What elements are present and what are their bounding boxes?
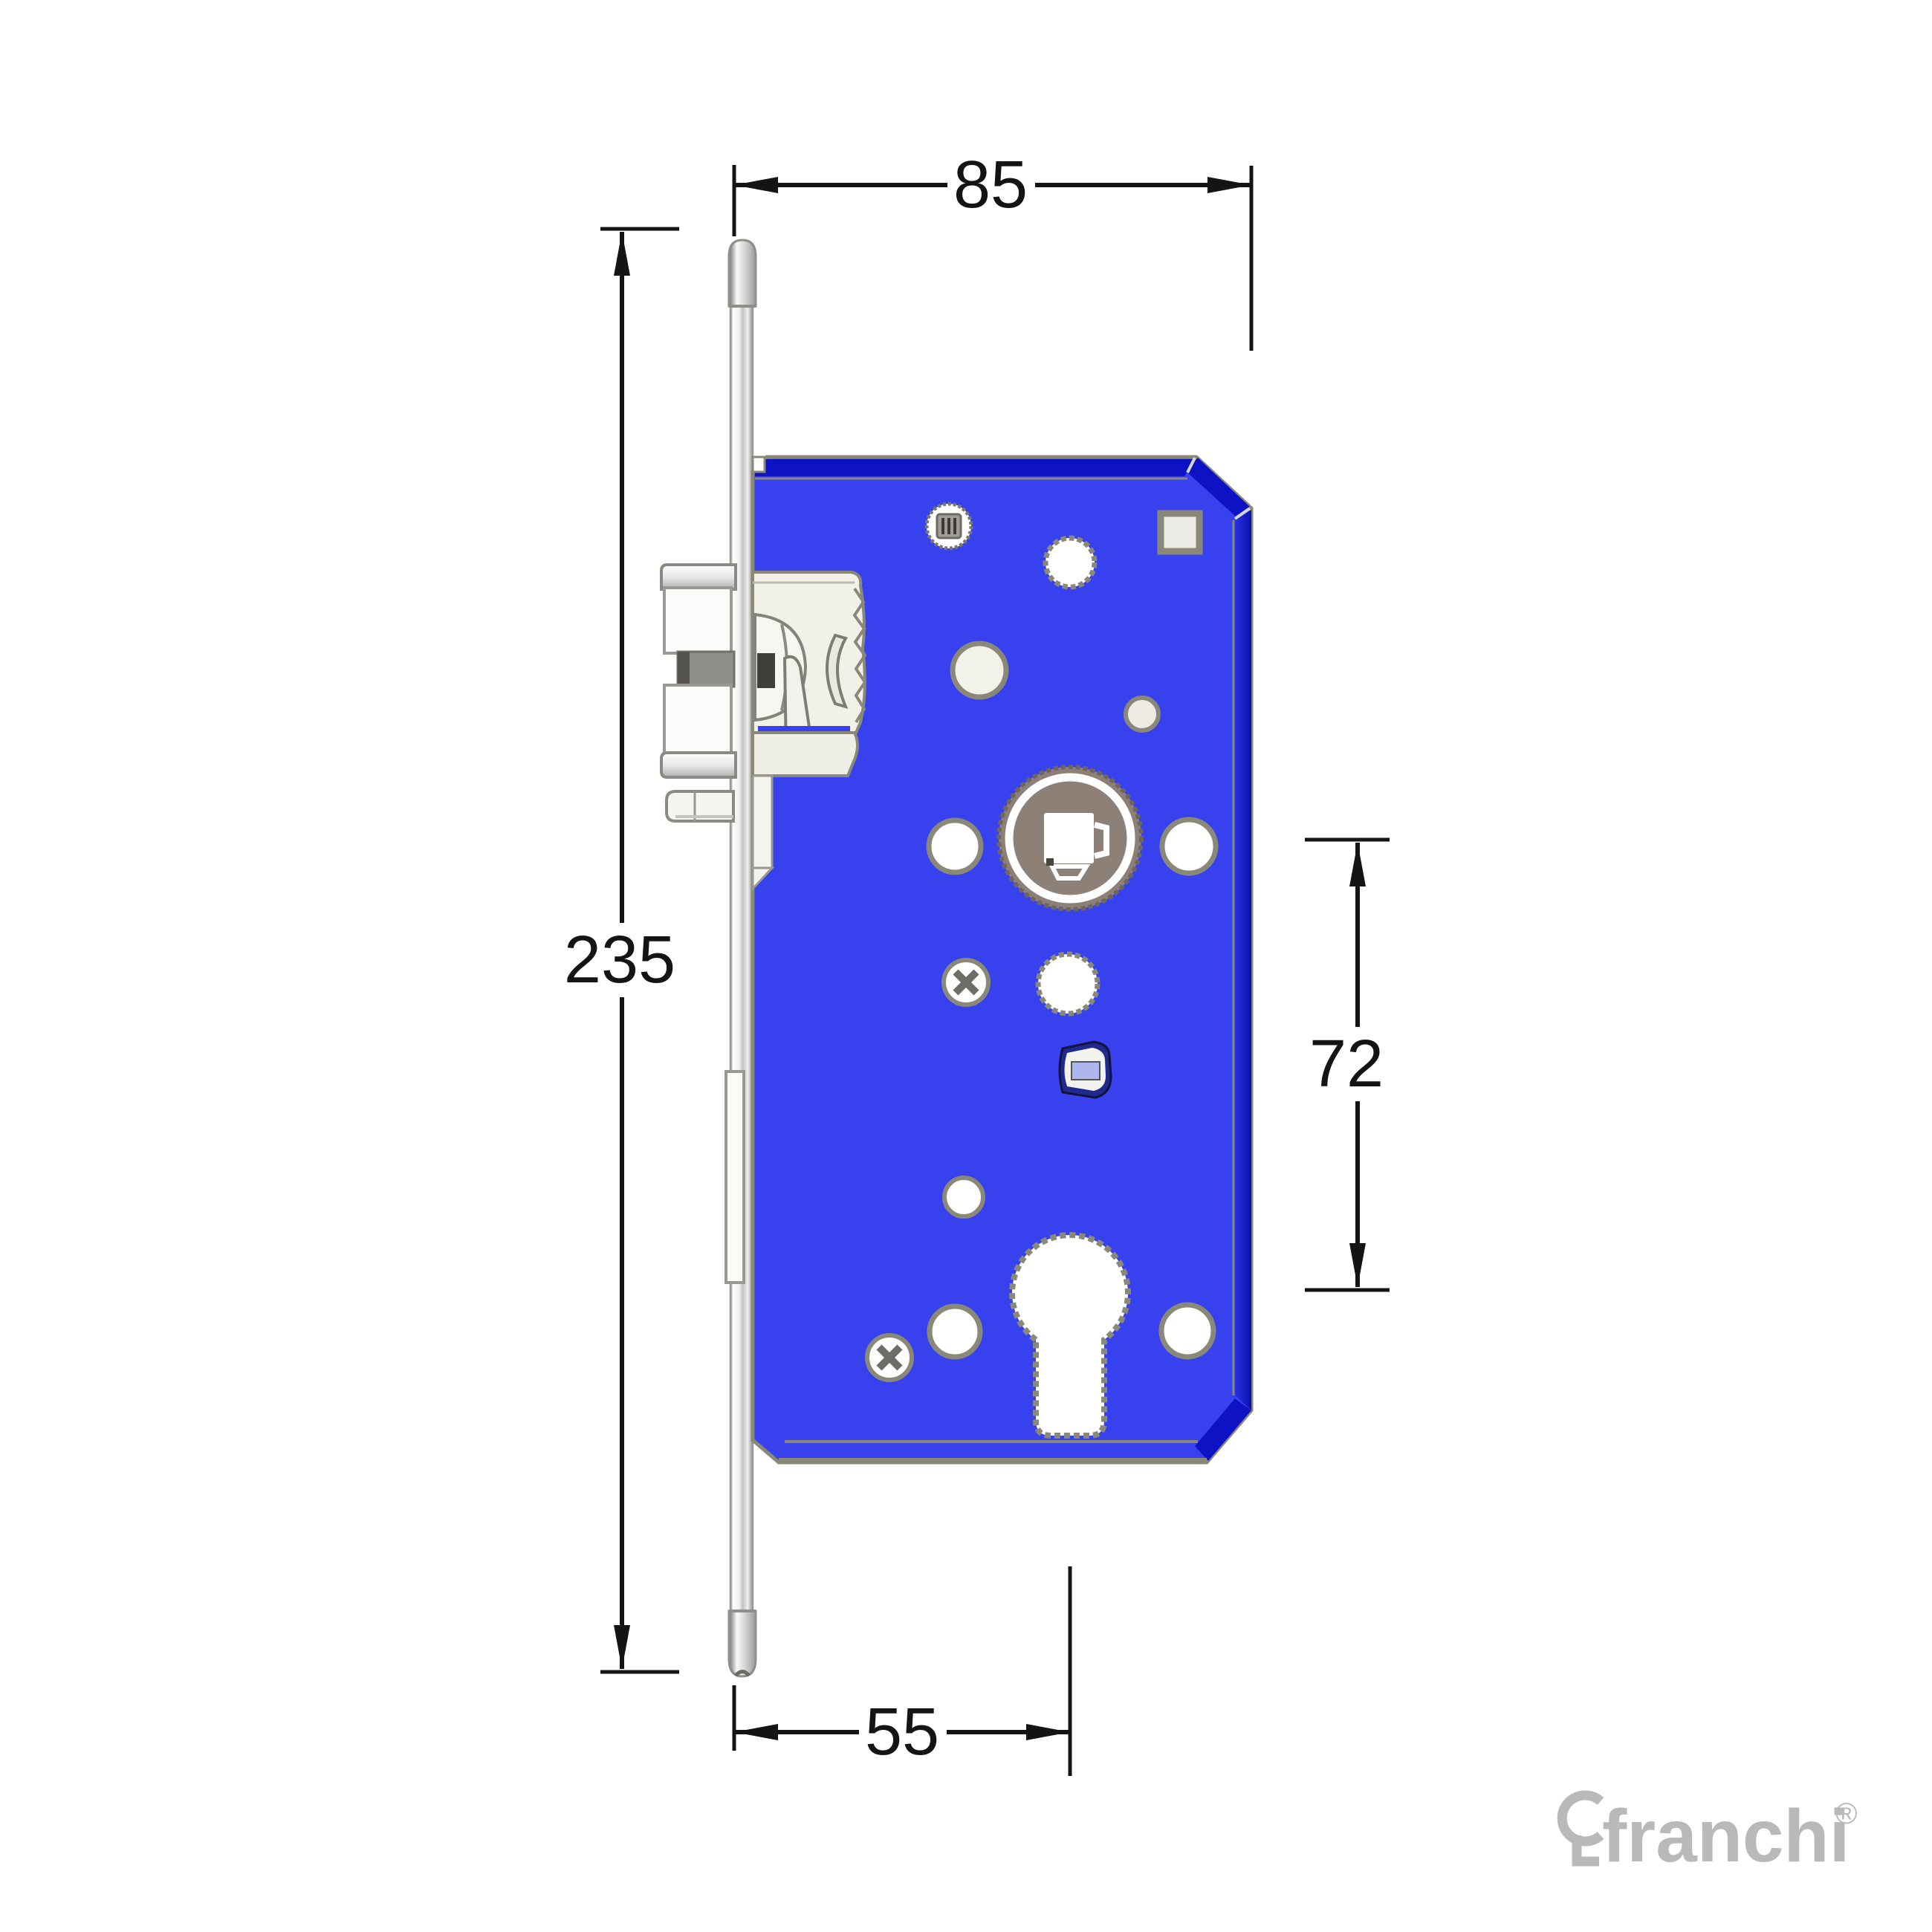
faceplate-strip xyxy=(730,306,753,1611)
dimension-backset: 55 xyxy=(734,1566,1070,1776)
registered-trademark: ® xyxy=(1835,1798,1857,1830)
auxiliary-pin xyxy=(667,791,733,821)
spindle-mark xyxy=(1046,858,1054,866)
faceplate-bottom-cap xyxy=(729,1611,756,1676)
mounting-hole xyxy=(1046,538,1095,587)
latch-bolt xyxy=(661,565,736,777)
mounting-hole xyxy=(1038,954,1098,1014)
dimension-label-235: 235 xyxy=(564,923,675,997)
lock-dimension-drawing: 85 235 72 55 franchi ® xyxy=(0,0,1932,1932)
mounting-hole xyxy=(930,1306,980,1357)
dimension-faceplate-length: 235 xyxy=(563,229,679,1672)
latch-bolt-tail xyxy=(757,653,775,688)
technical-drawing-page: 85 235 72 55 franchi ® xyxy=(0,0,1932,1932)
mounting-hole xyxy=(1161,1305,1213,1357)
square-hole xyxy=(1161,513,1199,551)
mechanism-rail xyxy=(753,776,772,868)
keyhole-icon xyxy=(1562,1795,1601,1841)
dimension-centre-distance: 72 xyxy=(1299,840,1395,1290)
case-top-left-notch xyxy=(753,457,765,472)
screw-knurled-top xyxy=(927,504,971,548)
latch-flange-bottom xyxy=(661,753,736,777)
square-spindle-hole xyxy=(1044,813,1094,863)
small-hole xyxy=(944,1178,983,1216)
dimension-case-depth: 85 xyxy=(734,148,1251,351)
mounting-hole xyxy=(1162,820,1216,873)
phillips-screw xyxy=(867,1335,912,1380)
brand-logo: franchi ® xyxy=(1562,1795,1857,1878)
deadlock-stop xyxy=(1060,1042,1111,1098)
small-hole xyxy=(1126,698,1158,730)
case-edge-band-top xyxy=(755,459,1195,476)
deadbolt-aperture xyxy=(726,1072,744,1283)
dimension-label-85: 85 xyxy=(953,148,1028,222)
dimension-label-72: 72 xyxy=(1309,1027,1384,1101)
case-edge-band-right xyxy=(1234,510,1251,1410)
latch-flange-top xyxy=(661,565,736,589)
latch-body-upper xyxy=(664,588,731,653)
latch-body-lower xyxy=(664,685,731,754)
handle-follower-hub xyxy=(999,767,1141,910)
lock-case-plate xyxy=(753,457,1251,1462)
latch-bevel-shadow xyxy=(678,652,690,687)
mounting-hole xyxy=(953,644,1006,697)
dimension-label-55: 55 xyxy=(865,1695,939,1769)
mounting-hole xyxy=(929,820,981,872)
brand-logo-text: franchi xyxy=(1602,1795,1850,1878)
phillips-screw xyxy=(944,960,988,1005)
mechanism-lower-block xyxy=(753,733,858,776)
faceplate-top-cap xyxy=(729,240,756,306)
